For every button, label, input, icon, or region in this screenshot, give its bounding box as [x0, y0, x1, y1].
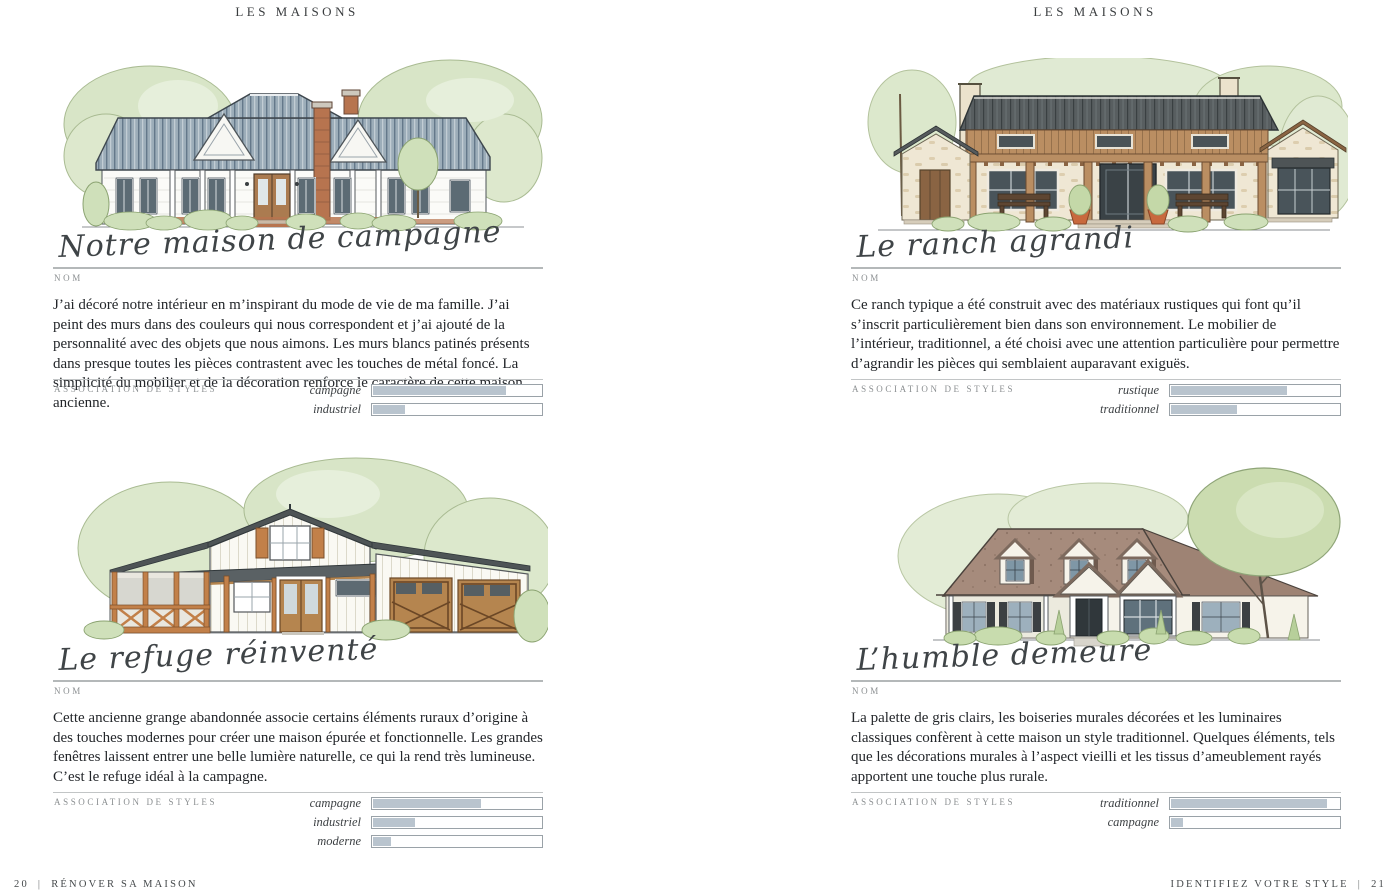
style-label: industriel	[313, 815, 361, 830]
ranch-illustration	[848, 58, 1348, 238]
style-bar-row: traditionnel	[1001, 403, 1341, 416]
house-description: La palette de gris clairs, les boiseries…	[851, 709, 1341, 787]
name-rule	[53, 680, 543, 682]
style-bars: rustique traditionnel	[1001, 384, 1341, 422]
cape-cod-illustration	[848, 464, 1348, 656]
style-bar-track	[371, 384, 543, 397]
style-bar-fill	[1171, 386, 1287, 395]
style-bar-fill	[1171, 799, 1327, 808]
style-bar-row: industriel	[203, 403, 543, 416]
style-bar-fill	[373, 799, 481, 808]
style-label: campagne	[310, 383, 361, 398]
style-bar-row: campagne	[203, 797, 543, 810]
name-field-label: NOM	[852, 273, 881, 283]
style-bars: campagne industriel	[203, 384, 543, 422]
style-label: campagne	[1108, 815, 1159, 830]
style-bar-fill	[373, 386, 506, 395]
styles-title: ASSOCIATION DE STYLES	[54, 384, 217, 394]
style-bar-row: campagne	[203, 384, 543, 397]
page-header-left: LES MAISONS	[53, 4, 541, 20]
style-label: traditionnel	[1100, 796, 1159, 811]
style-bar-track	[371, 835, 543, 848]
style-bar-fill	[1171, 818, 1183, 827]
name-field-label: NOM	[54, 273, 83, 283]
name-rule	[851, 680, 1341, 682]
style-bar-track	[371, 403, 543, 416]
footer-right: IDENTIFIEZ VOTRE STYLE | 21	[1171, 879, 1387, 890]
page-number: 21	[1371, 879, 1386, 890]
style-bar-row: industriel	[203, 816, 543, 829]
styles-title: ASSOCIATION DE STYLES	[852, 797, 1015, 807]
style-label: industriel	[313, 402, 361, 417]
style-bars: campagne industriel moderne	[203, 797, 543, 854]
barn-illustration	[58, 452, 548, 650]
styles-title: ASSOCIATION DE STYLES	[852, 384, 1015, 394]
page-number: 20	[14, 879, 29, 890]
farmhouse-illustration	[58, 56, 548, 238]
style-label: campagne	[310, 796, 361, 811]
style-label: rustique	[1118, 383, 1159, 398]
book-spread: LES MAISONS LES MAISONS	[0, 0, 1400, 896]
style-bar-row: campagne	[1001, 816, 1341, 829]
style-label: moderne	[317, 834, 361, 849]
style-bar-track	[1169, 384, 1341, 397]
style-bar-track	[371, 797, 543, 810]
house-description: Ce ranch typique a été construit avec de…	[851, 296, 1341, 374]
style-bar-track	[1169, 797, 1341, 810]
name-field-label: NOM	[54, 686, 83, 696]
styles-rule	[851, 379, 1341, 380]
style-label: traditionnel	[1100, 402, 1159, 417]
styles-rule	[851, 792, 1341, 793]
style-bar-track	[1169, 816, 1341, 829]
style-bars: traditionnel campagne	[1001, 797, 1341, 835]
styles-rule	[53, 379, 543, 380]
style-bar-fill	[373, 405, 405, 414]
style-bar-track	[1169, 403, 1341, 416]
style-bar-fill	[1171, 405, 1237, 414]
name-rule	[53, 267, 543, 269]
book-title: RÉNOVER SA MAISON	[51, 879, 198, 890]
style-bar-row: moderne	[203, 835, 543, 848]
name-field-label: NOM	[852, 686, 881, 696]
style-bar-row: traditionnel	[1001, 797, 1341, 810]
name-rule	[851, 267, 1341, 269]
style-bar-fill	[373, 837, 391, 846]
style-bar-row: rustique	[1001, 384, 1341, 397]
chapter-title: IDENTIFIEZ VOTRE STYLE	[1171, 879, 1349, 890]
style-bar-fill	[373, 818, 415, 827]
footer-divider: |	[38, 879, 42, 890]
footer-divider: |	[1358, 879, 1362, 890]
page-header-right: LES MAISONS	[851, 4, 1339, 20]
style-bar-track	[371, 816, 543, 829]
styles-rule	[53, 792, 543, 793]
styles-title: ASSOCIATION DE STYLES	[54, 797, 217, 807]
footer-left: 20 | RÉNOVER SA MAISON	[14, 879, 198, 890]
house-description: Cette ancienne grange abandonnée associe…	[53, 709, 543, 787]
